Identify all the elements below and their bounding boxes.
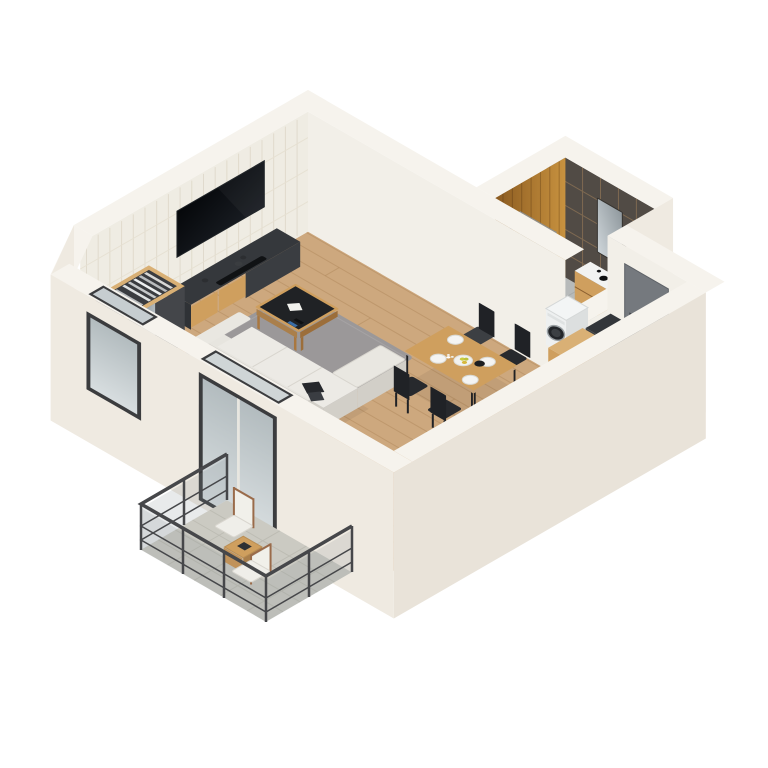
coffee-table-leg-1 <box>257 315 259 329</box>
floorplan-stage <box>0 0 768 768</box>
isometric-floorplan-render <box>0 0 768 768</box>
coffee-table-leg-2 <box>294 337 296 351</box>
apartment <box>19 90 724 622</box>
coffee-table-leg-3 <box>301 337 303 351</box>
